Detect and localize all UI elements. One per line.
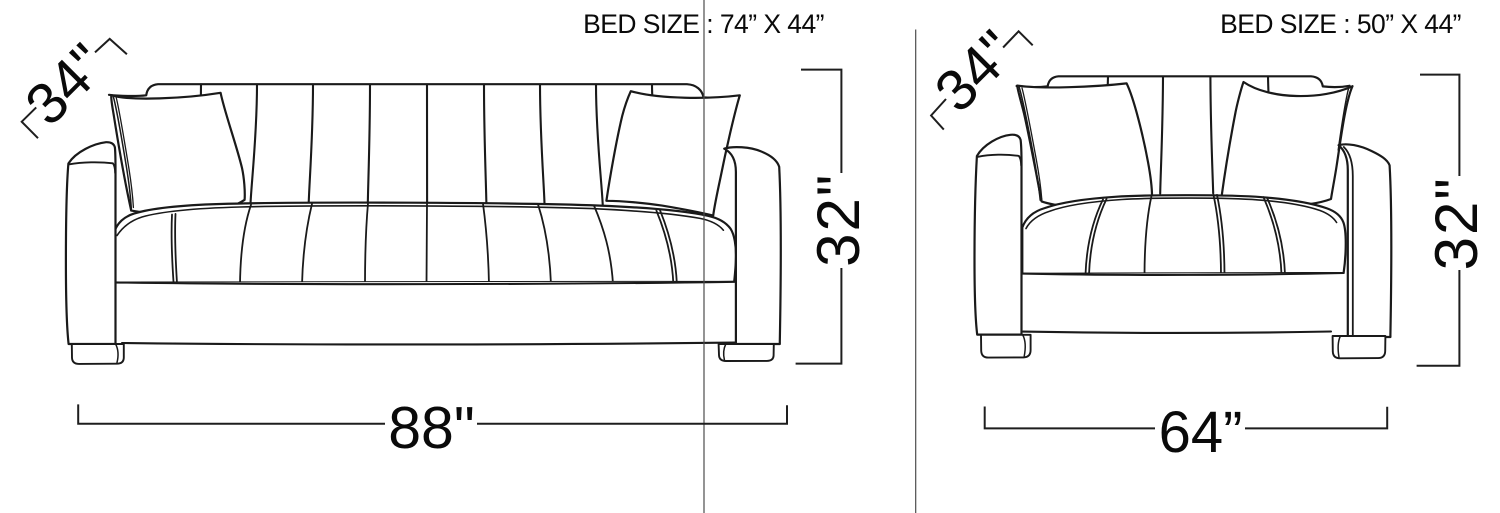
svg-text:88": 88" bbox=[388, 395, 475, 461]
svg-text:BED SIZE : 74” X 44”: BED SIZE : 74” X 44” bbox=[583, 9, 824, 39]
svg-text:34": 34" bbox=[13, 31, 119, 137]
svg-text:32": 32" bbox=[1423, 176, 1490, 270]
svg-text:64”: 64” bbox=[1159, 400, 1243, 465]
svg-text:BED SIZE : 50” X 44”: BED SIZE : 50” X 44” bbox=[1220, 9, 1461, 39]
svg-text:32": 32" bbox=[805, 173, 872, 267]
